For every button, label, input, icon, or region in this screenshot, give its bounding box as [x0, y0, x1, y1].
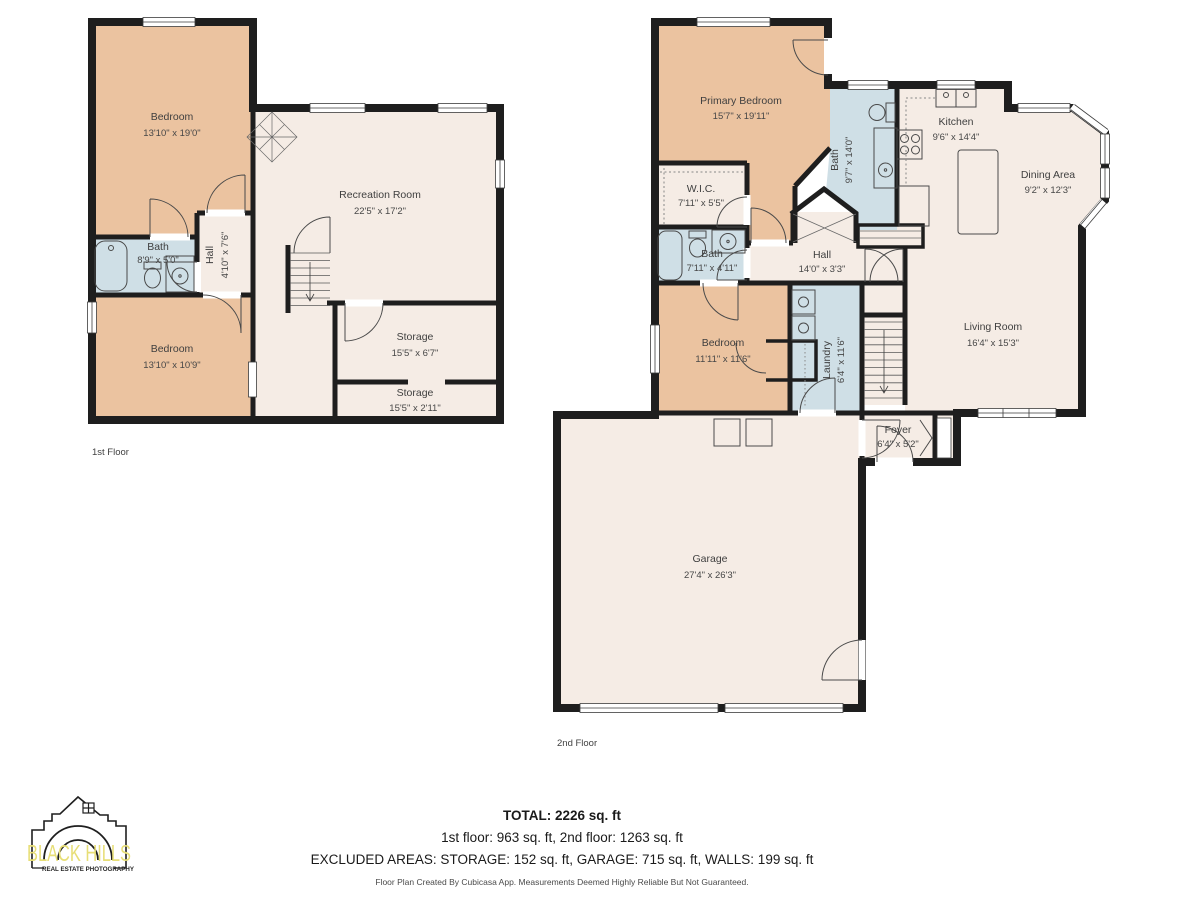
- room-label: Garage: [692, 553, 727, 565]
- room-dims: 13'10" x 19'0": [143, 128, 200, 139]
- room-label: Storage: [397, 387, 434, 399]
- room-label: Bedroom: [702, 337, 745, 349]
- floor1-caption: 1st Floor: [92, 447, 129, 458]
- room-dims: 8'9" x 5'0": [137, 255, 179, 266]
- room-dims: 15'5" x 6'7": [392, 348, 439, 359]
- room-label: Bath: [147, 241, 169, 253]
- disclaimer-line: Floor Plan Created By Cubicasa App. Meas…: [0, 877, 1124, 887]
- room-dims: 9'2" x 12'3": [1025, 185, 1072, 196]
- room-dims: 13'10" x 10'9": [143, 360, 200, 371]
- room-label: Recreation Room: [339, 189, 421, 201]
- room-label: Foyer: [885, 424, 912, 436]
- floorplan-page: Bedroom 13'10" x 19'0" Recreation Room 2…: [0, 0, 1200, 900]
- room-label: Storage: [397, 331, 434, 343]
- black-hills-logo: BLACK HILLS REAL ESTATE PHOTOGRAPHY: [20, 784, 142, 888]
- room-dims: 6'4" x 11'6": [836, 337, 847, 383]
- floor2-plan: Primary Bedroom 15'7" x 19'11" W.I.C. 7'…: [557, 18, 1110, 750]
- excluded-areas-line: EXCLUDED AREAS: STORAGE: 152 sq. ft, GAR…: [0, 849, 1124, 871]
- room-dims: 16'4" x 15'3": [967, 338, 1019, 349]
- room-dims: 27'4" x 26'3": [684, 570, 736, 581]
- floor1-plan: Bedroom 13'10" x 19'0" Recreation Room 2…: [88, 18, 505, 459]
- room-dims: 22'5" x 17'2": [354, 206, 406, 217]
- room-label: Bath: [701, 248, 723, 260]
- room-dims: 15'5" x 2'11": [389, 403, 440, 414]
- room-dims: 7'11" x 5'5": [678, 198, 724, 209]
- logo-brand-text: BLACK HILLS: [27, 840, 131, 866]
- room-label: Kitchen: [938, 116, 973, 128]
- room-label: W.I.C.: [687, 183, 716, 195]
- room-dims: 14'0" x 3'3": [799, 264, 846, 275]
- room-dims: 6'4" x 5'2": [877, 439, 919, 450]
- area-summary: TOTAL: 2226 sq. ft 1st floor: 963 sq. ft…: [0, 805, 1124, 887]
- room-label: Bedroom: [151, 343, 194, 355]
- room-label: Dining Area: [1021, 169, 1075, 181]
- room-label: Living Room: [964, 321, 1023, 333]
- floor2-caption: 2nd Floor: [557, 738, 597, 749]
- room-label: Hall: [813, 249, 831, 261]
- room-dims: 7'11" x 4'11": [687, 263, 738, 274]
- room-label: Primary Bedroom: [700, 95, 782, 107]
- room-dims: 15'7" x 19'11": [713, 111, 770, 122]
- room-dims: 11'11" x 11'6": [695, 354, 750, 365]
- room-label: Laundry: [821, 340, 833, 379]
- room-label: Bath: [829, 149, 841, 171]
- room-label: Bedroom: [151, 111, 194, 123]
- room-dims: 9'6" x 14'4": [933, 132, 980, 143]
- room-dims: 4'10" x 7'6": [220, 232, 231, 279]
- total-area-line: TOTAL: 2226 sq. ft: [0, 805, 1124, 827]
- room-label: Hall: [204, 246, 216, 264]
- floorplans-svg: Bedroom 13'10" x 19'0" Recreation Room 2…: [0, 0, 1200, 900]
- logo-tagline-text: REAL ESTATE PHOTOGRAPHY: [42, 866, 135, 873]
- floor-areas-line: 1st floor: 963 sq. ft, 2nd floor: 1263 s…: [0, 827, 1124, 849]
- room-dims: 9'7" x 14'0": [844, 137, 855, 184]
